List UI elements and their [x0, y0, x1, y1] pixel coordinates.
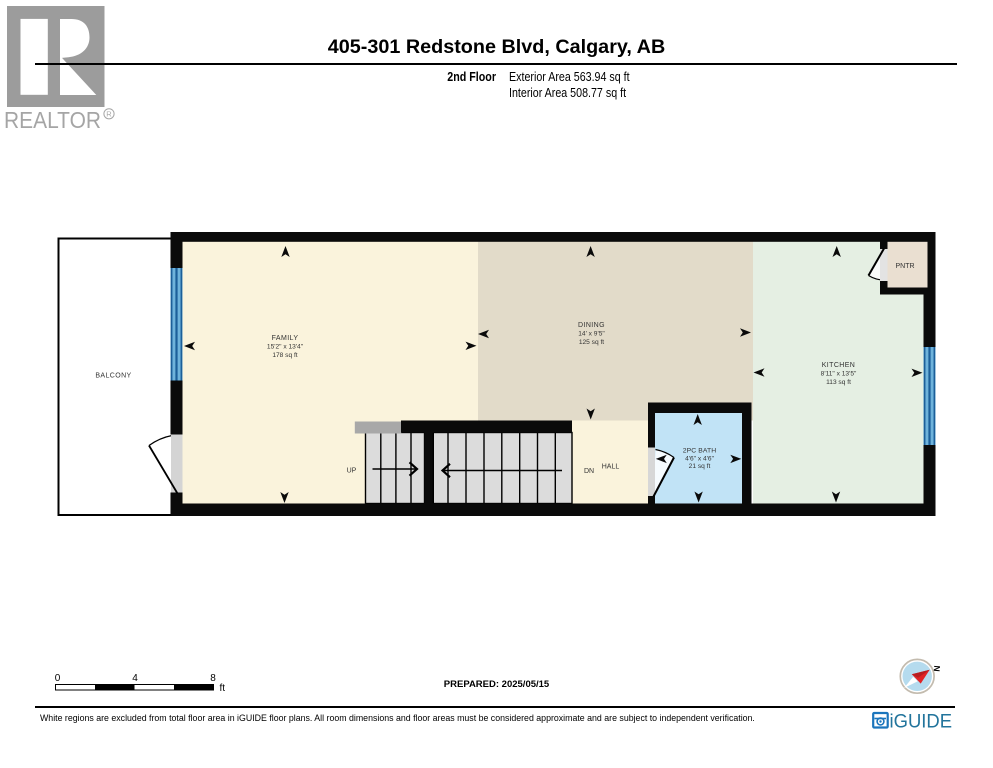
- svg-text:iGUIDE: iGUIDE: [890, 711, 953, 733]
- svg-text:N: N: [932, 665, 942, 672]
